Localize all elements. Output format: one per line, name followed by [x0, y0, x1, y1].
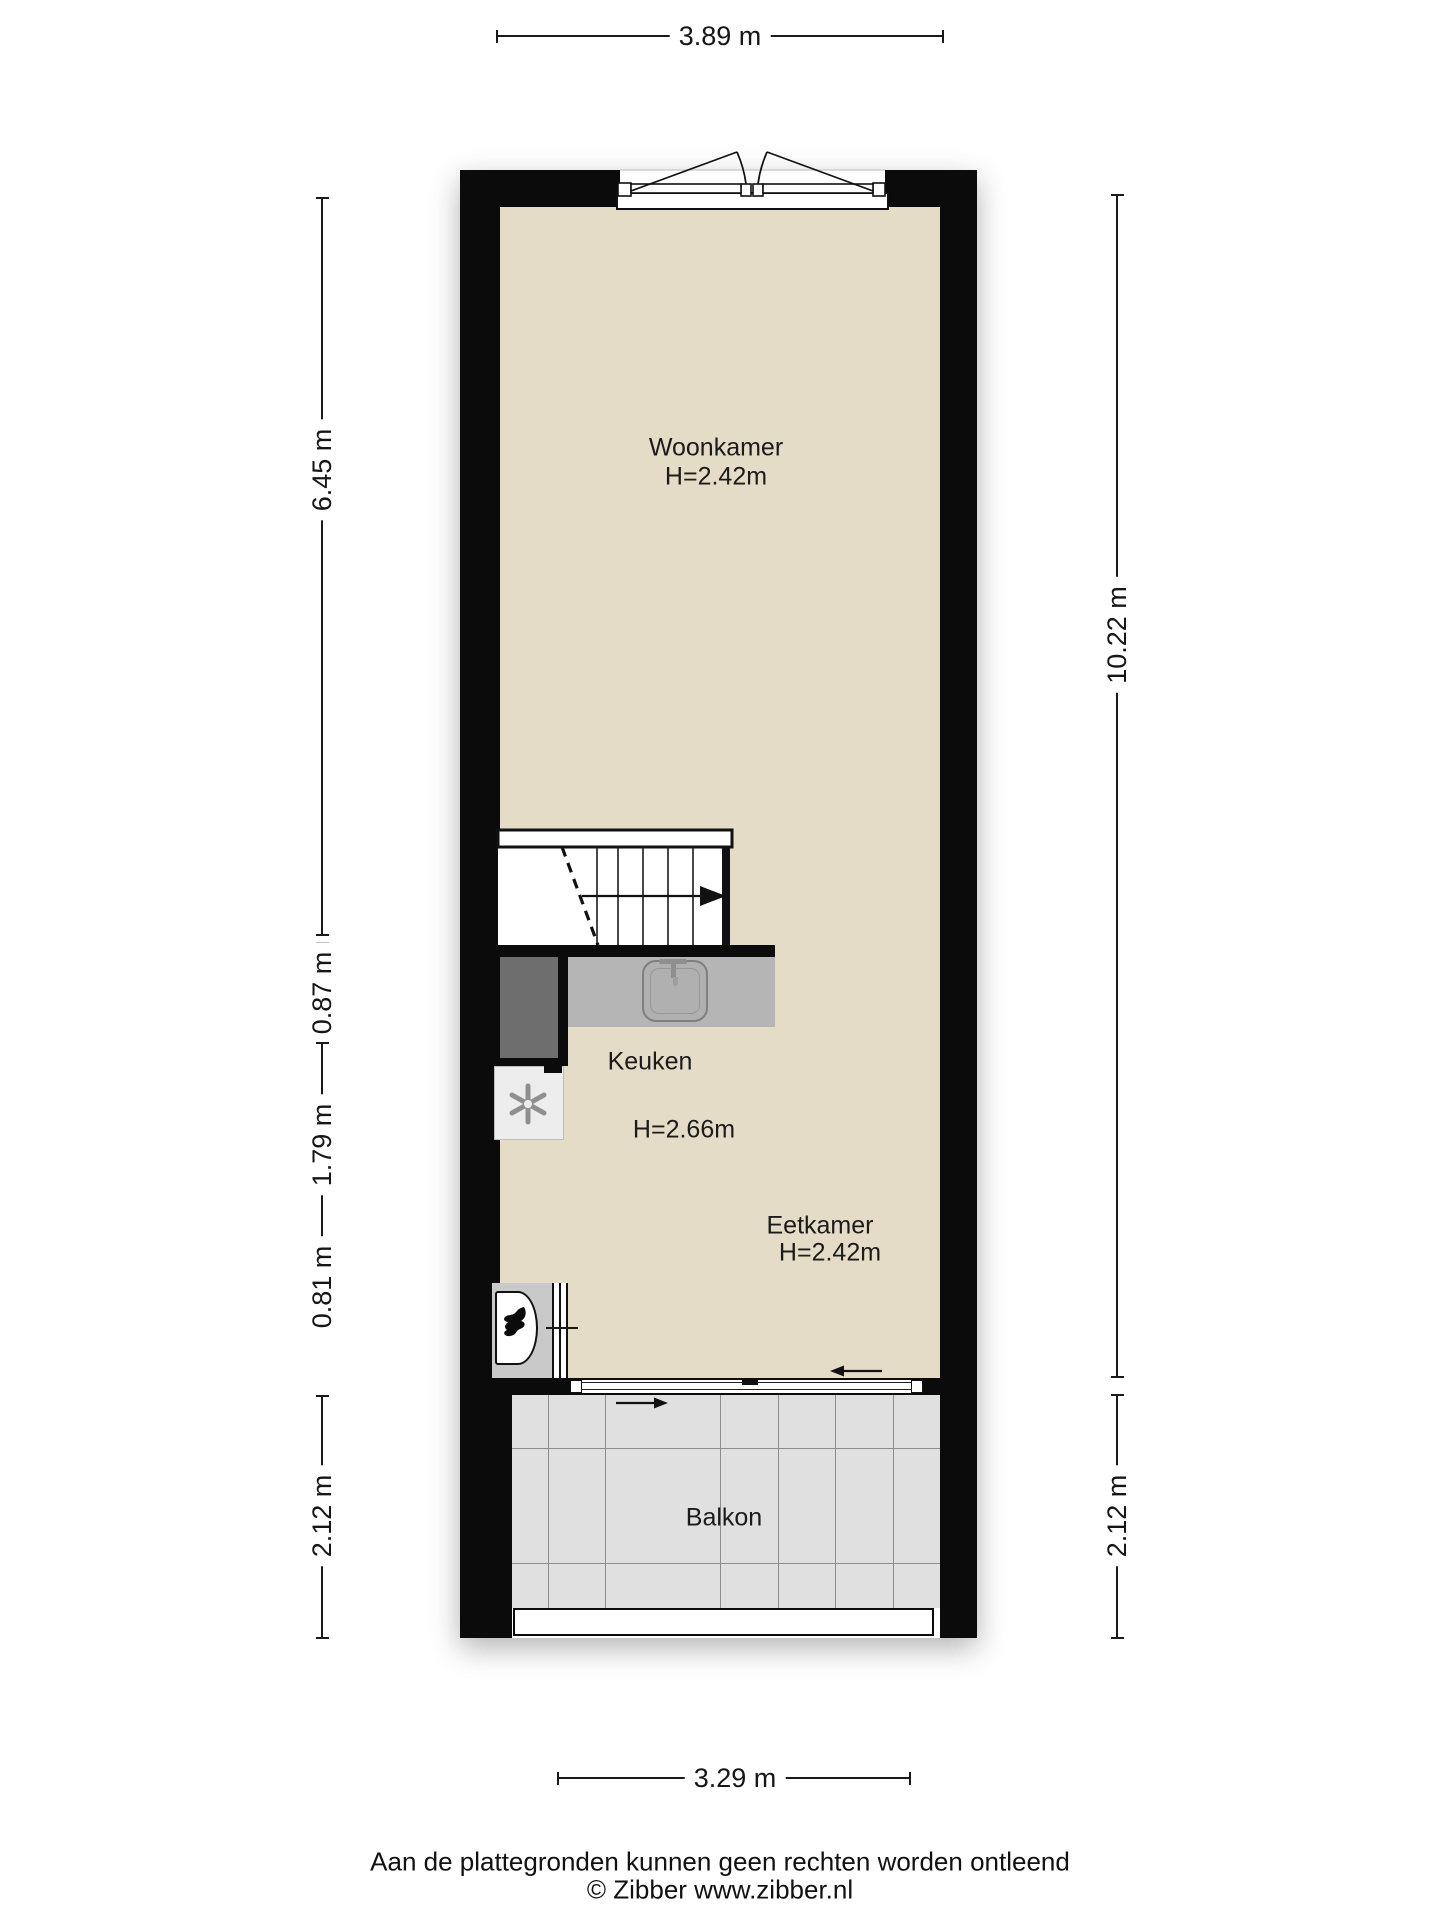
wall-balcony-left [460, 1395, 512, 1638]
dim-label-left-1: 6.45 m [307, 420, 337, 521]
room-height-eetkamer: H=2.42m [779, 1240, 881, 1267]
glass-mid-line [559, 1283, 561, 1378]
room-height-woonkamer: H=2.42m [665, 464, 767, 491]
dim-tick [1111, 1637, 1124, 1639]
dim-tick [942, 30, 944, 43]
balcony-grid-line [512, 1448, 940, 1449]
french-doors-icon [596, 140, 896, 215]
room-height-keuken: H=2.66m [633, 1117, 735, 1144]
dim-tick [496, 30, 498, 43]
room-label-balkon: Balkon [686, 1505, 762, 1532]
staircase [496, 824, 738, 949]
balcony-grid-line [720, 1395, 721, 1608]
balcony-grid-line [835, 1395, 836, 1608]
balcony-grid-line [512, 1563, 940, 1564]
balcony-railing [513, 1608, 934, 1636]
dim-label-left-5: 2.12 m [307, 1466, 337, 1567]
dim-line-left-1 [321, 198, 323, 935]
wall-left [460, 170, 500, 1395]
floorplan-canvas: Woonkamer H=2.42m Keuken H=2.66m Eetkame… [0, 0, 1440, 1920]
ventilation-asterisk-icon [505, 1081, 551, 1127]
wall-shaft-right [558, 957, 568, 1066]
balcony-grid-line [778, 1395, 779, 1608]
room-label-eetkamer: Eetkamer [767, 1213, 874, 1240]
slide-direction-arrow-in [828, 1361, 886, 1381]
dim-tick [557, 1772, 559, 1785]
dim-tick [316, 1395, 329, 1397]
dim-tick [1111, 194, 1124, 196]
wall-tick [546, 1327, 578, 1329]
dim-tick [316, 1042, 329, 1044]
wall-bottom-right-segment [923, 1378, 977, 1395]
wall-bottom-left-segment [460, 1378, 570, 1395]
dim-tick [316, 197, 329, 199]
sliding-door-frame-right [911, 1380, 923, 1393]
dim-label-top: 3.89 m [670, 21, 771, 51]
dim-tick [316, 1637, 329, 1639]
sliding-door-frame-left [570, 1380, 582, 1393]
dim-label-left-4: 0.81 m [307, 1237, 337, 1338]
interior-floor [500, 207, 943, 1378]
footer-disclaimer: Aan de plattegronden kunnen geen rechten… [370, 1848, 1070, 1877]
faucet-icon [673, 977, 678, 986]
dim-tick [1111, 1376, 1124, 1378]
room-label-keuken: Keuken [608, 1049, 693, 1076]
shaft-box [500, 957, 558, 1058]
balcony-grid-line [893, 1395, 894, 1608]
slide-direction-arrow-out [612, 1393, 670, 1413]
dim-label-right-2: 2.12 m [1102, 1466, 1132, 1567]
fireplace-flame-icon [499, 1305, 529, 1345]
dim-label-bottom: 3.29 m [685, 1763, 786, 1793]
dim-tick [1111, 1394, 1124, 1396]
ventilation-unit-corner [544, 1066, 562, 1073]
dim-tick [909, 1772, 911, 1785]
dim-label-right-1: 10.22 m [1102, 577, 1132, 693]
fireplace-glass-partition [552, 1283, 568, 1378]
wall-shaft-bottom [460, 1058, 568, 1066]
room-label-woonkamer: Woonkamer [649, 435, 783, 462]
balcony-grid-line [548, 1395, 549, 1608]
balcony-tiles [512, 1395, 940, 1608]
wall-right [940, 170, 977, 1638]
dim-label-left-2: 0.87 m [307, 943, 337, 1044]
sliding-door-handle [742, 1380, 758, 1385]
footer-credit: © Zibber www.zibber.nl [587, 1876, 853, 1905]
dim-tick [316, 934, 329, 936]
faucet-icon [671, 959, 676, 978]
balcony-grid-line [605, 1395, 606, 1608]
dim-line-right-1 [1116, 195, 1118, 1377]
dim-label-left-3: 1.79 m [307, 1095, 337, 1196]
